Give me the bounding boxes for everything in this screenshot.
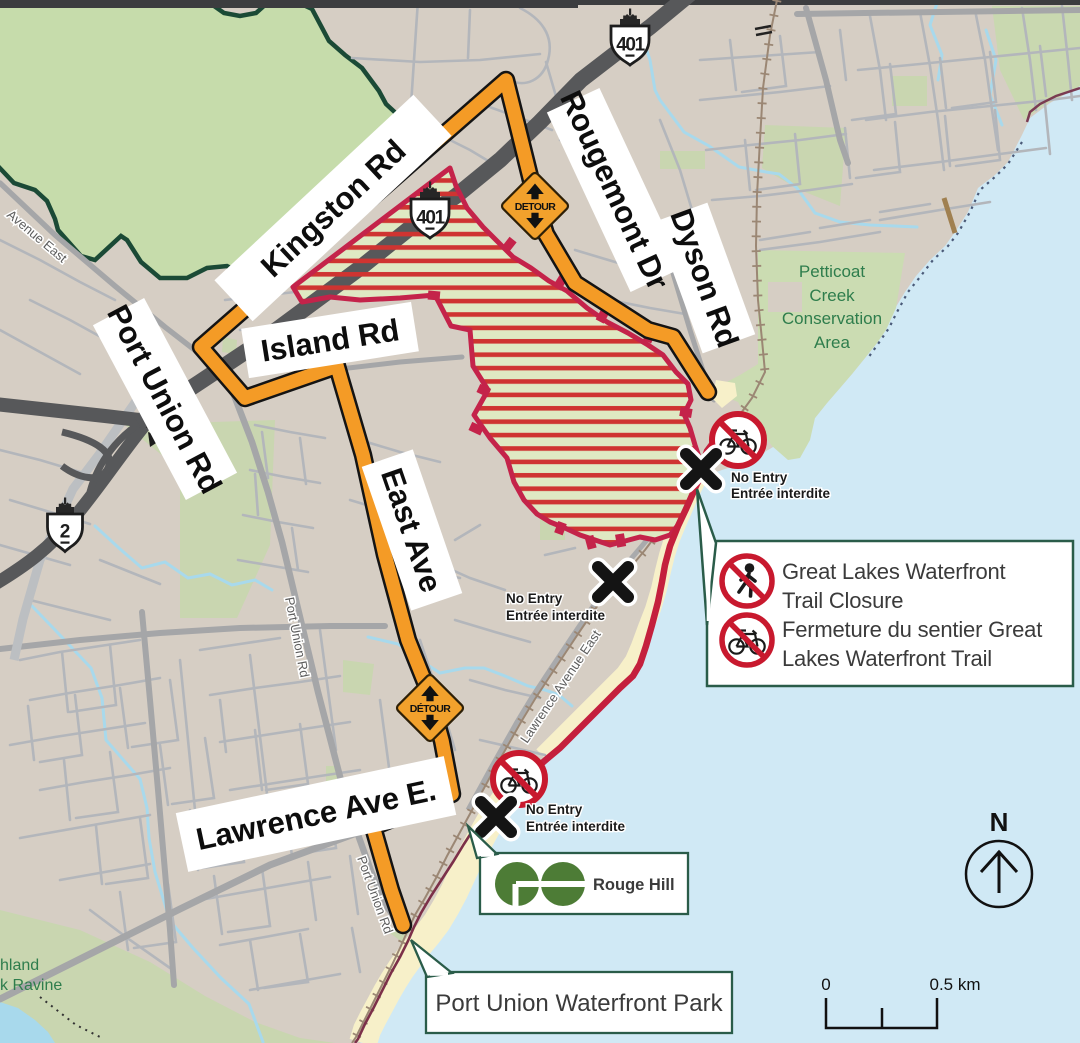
svg-text:Entrée interdite: Entrée interdite <box>731 486 831 501</box>
svg-text:Fermeture du sentier Great: Fermeture du sentier Great <box>782 617 1042 642</box>
svg-text:401: 401 <box>616 35 645 56</box>
svg-text:0.5 km: 0.5 km <box>929 975 980 994</box>
svg-text:Entrée interdite: Entrée interdite <box>526 819 626 834</box>
svg-text:hland: hland <box>0 957 39 974</box>
svg-text:No Entry: No Entry <box>506 591 563 606</box>
svg-text:k Ravine: k Ravine <box>0 977 62 994</box>
svg-text:DETOUR: DETOUR <box>515 201 557 213</box>
svg-text:Entrée interdite: Entrée interdite <box>506 608 606 623</box>
svg-text:Area: Area <box>814 333 850 352</box>
svg-text:401: 401 <box>416 208 445 229</box>
svg-text:Trail Closure: Trail Closure <box>782 588 903 613</box>
svg-text:N: N <box>990 807 1009 837</box>
svg-text:Conservation: Conservation <box>782 309 882 328</box>
svg-text:No Entry: No Entry <box>526 802 583 817</box>
svg-text:Great Lakes Waterfront: Great Lakes Waterfront <box>782 559 1006 584</box>
svg-text:No Entry: No Entry <box>731 470 788 485</box>
svg-text:0: 0 <box>821 975 830 994</box>
svg-text:Rouge Hill: Rouge Hill <box>593 876 675 894</box>
svg-text:Creek: Creek <box>809 286 855 305</box>
svg-text:Petticoat: Petticoat <box>799 262 865 281</box>
svg-text:Lakes Waterfront Trail: Lakes Waterfront Trail <box>782 646 992 671</box>
svg-text:2: 2 <box>60 522 71 543</box>
svg-text:DÉTOUR: DÉTOUR <box>410 702 452 715</box>
svg-text:Port Union Waterfront Park: Port Union Waterfront Park <box>435 990 723 1017</box>
